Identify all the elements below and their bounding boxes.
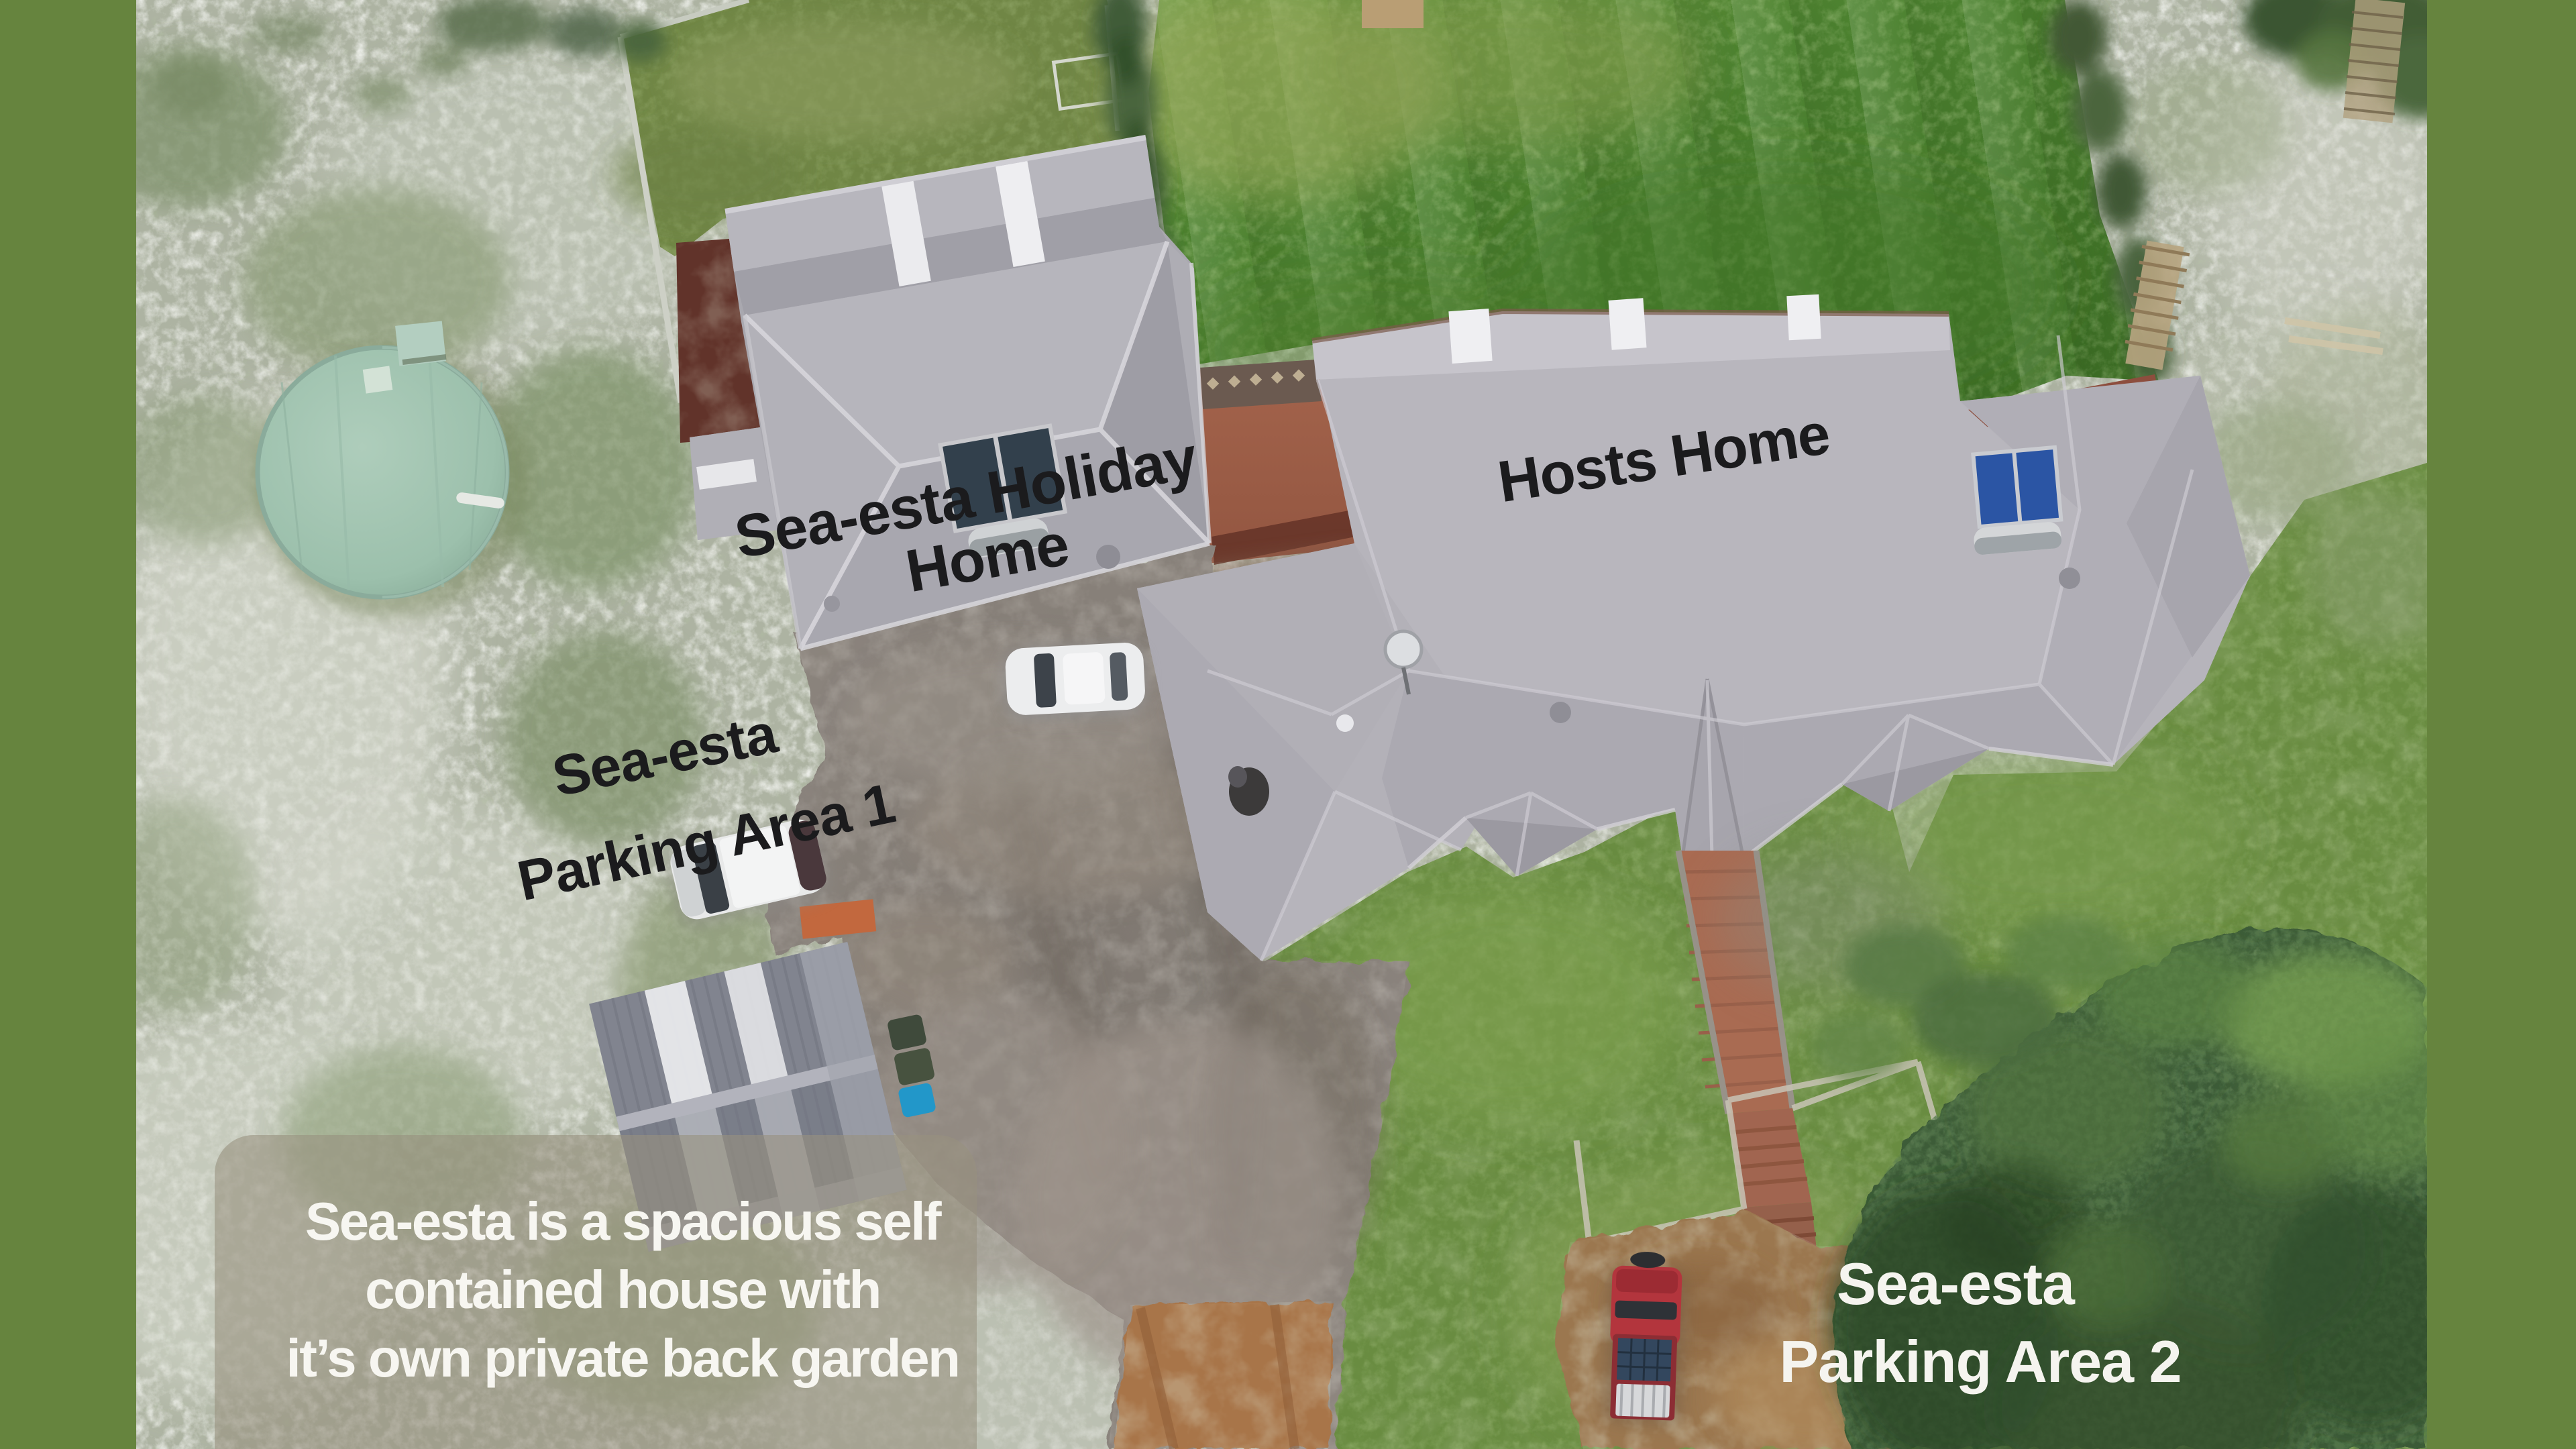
svg-text:Sea-esta is a spacious self: Sea-esta is a spacious self xyxy=(305,1191,942,1251)
svg-text:Parking Area 2: Parking Area 2 xyxy=(1779,1328,2181,1395)
svg-text:contained house with: contained house with xyxy=(365,1260,880,1320)
svg-text:Sea-esta: Sea-esta xyxy=(1837,1250,2076,1317)
svg-text:it’s own private back garden: it’s own private back garden xyxy=(286,1328,959,1388)
